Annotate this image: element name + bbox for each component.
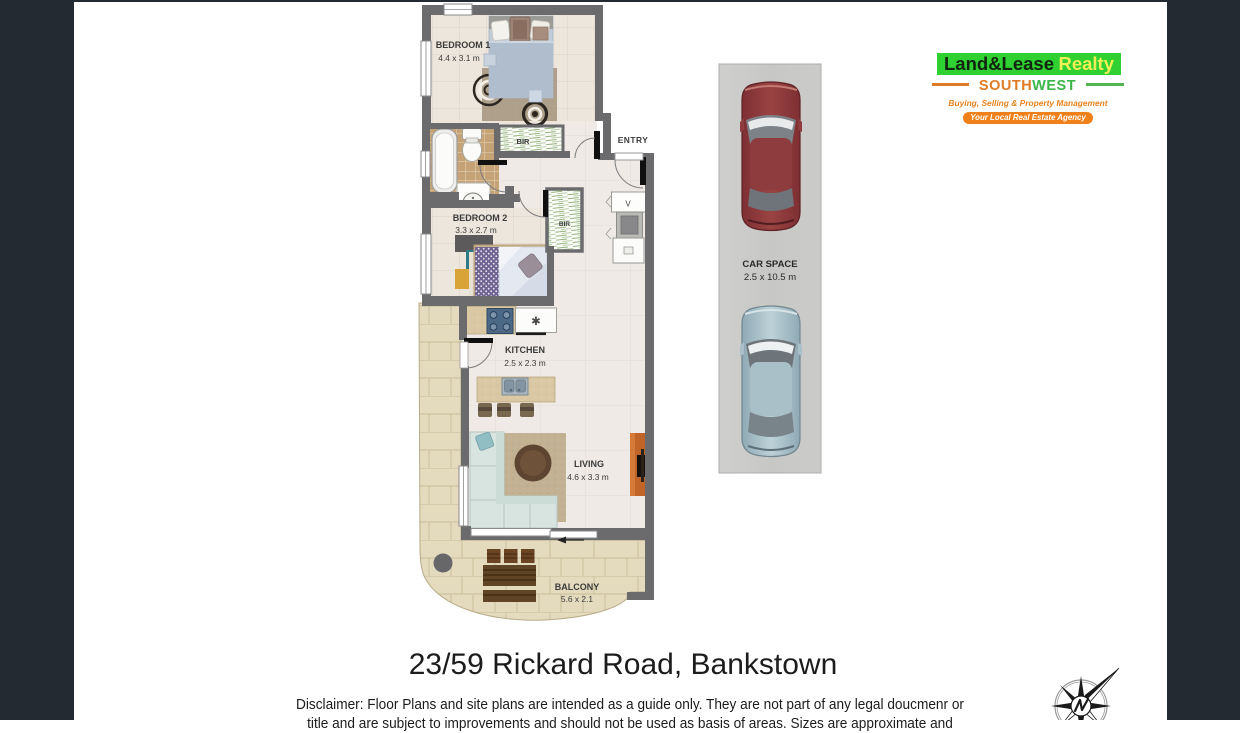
svg-text:ENTRY: ENTRY [618, 135, 649, 145]
svg-text:BEDROOM 1: BEDROOM 1 [436, 40, 491, 50]
svg-text:V: V [625, 200, 631, 209]
svg-text:BIR: BIR [517, 137, 531, 146]
svg-text:3.3 x 2.7 m: 3.3 x 2.7 m [455, 225, 496, 235]
svg-text:LIVING: LIVING [574, 459, 604, 469]
svg-text:✱: ✱ [531, 316, 541, 328]
svg-text:2.5 x 2.3 m: 2.5 x 2.3 m [504, 358, 545, 368]
svg-text:CAR SPACE: CAR SPACE [742, 259, 797, 270]
svg-text:BALCONY: BALCONY [555, 582, 600, 592]
svg-text:2.5 x 10.5 m: 2.5 x 10.5 m [744, 272, 796, 283]
svg-text:5.6 x 2.1: 5.6 x 2.1 [561, 594, 593, 604]
svg-text:BIR: BIR [559, 221, 571, 228]
svg-text:KITCHEN: KITCHEN [505, 345, 545, 355]
svg-text:BEDROOM 2: BEDROOM 2 [453, 213, 508, 223]
svg-text:4.4 x 3.1 m: 4.4 x 3.1 m [438, 53, 479, 63]
svg-text:4.6 x 3.3 m: 4.6 x 3.3 m [567, 472, 608, 482]
